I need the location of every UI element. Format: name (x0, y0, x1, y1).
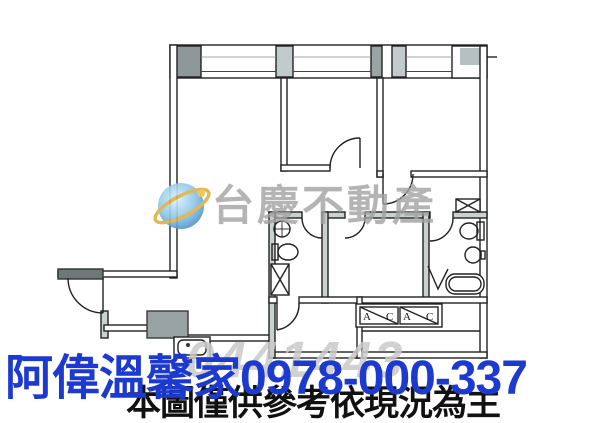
bedroom1-door (330, 138, 360, 168)
top-exterior-wall (170, 45, 497, 78)
bathtub-icon (446, 274, 484, 294)
kitchen-door (277, 303, 299, 330)
shaft-box (271, 264, 289, 295)
entry-door (68, 278, 103, 313)
ac2-label-a: A (403, 311, 411, 323)
folding-door (428, 266, 448, 289)
agent-phone-caption: 阿偉溫馨家0978-000-337 (5, 355, 527, 403)
kitchen-counter (147, 311, 188, 338)
toilet-icon (272, 244, 298, 260)
ac-box-upper (456, 199, 480, 212)
floorplan-image: A C A C 0441443 台慶不動產 本圖僅供參考依現況為主 阿偉溫馨家0… (0, 0, 600, 423)
ac2-label-c: C (426, 311, 433, 323)
agency-watermark: 台慶不動產 (212, 185, 437, 227)
agency-globe-logo (152, 180, 216, 232)
ac1-label-a: A (363, 311, 371, 323)
ac1-label-c: C (386, 311, 393, 323)
